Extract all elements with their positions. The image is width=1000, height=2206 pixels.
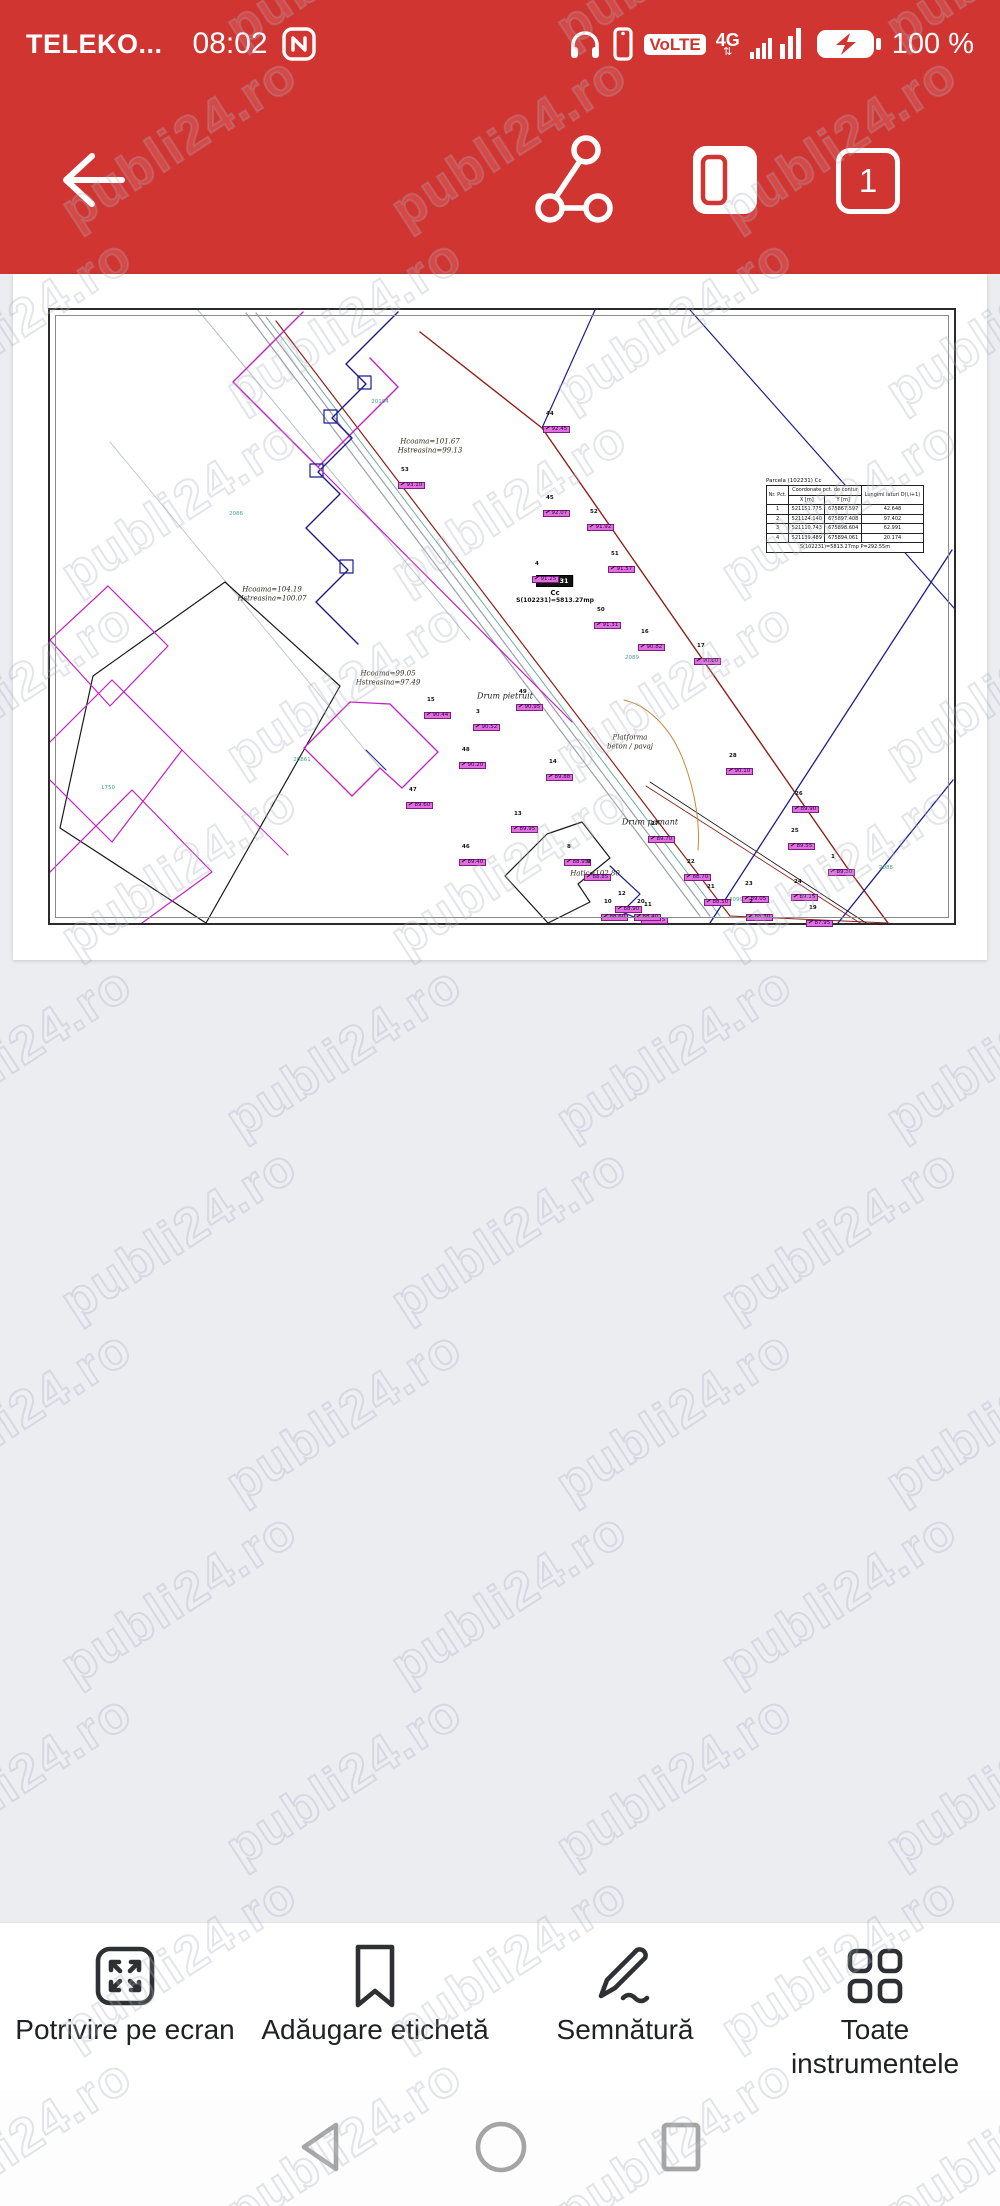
bottom-toolbar: Potrivire pe ecran Adăugare etichetă Sem… <box>0 1922 1000 2091</box>
watermark-text: publi24.ro <box>50 1500 308 1697</box>
share-route-button[interactable] <box>528 132 620 231</box>
survey-point-marker: 5291.92 <box>587 510 614 532</box>
watermark-text: publi24.ro <box>545 954 803 1151</box>
survey-point-marker: 4789.60 <box>406 788 433 810</box>
watermark-text: publi24.ro <box>875 1682 1000 1879</box>
survey-point-marker: 2689.90 <box>792 792 819 814</box>
reading-mode-button[interactable] <box>692 145 758 218</box>
status-clock: 08:02 <box>193 27 268 61</box>
signature-pen-icon <box>593 1939 657 2013</box>
pdf-page[interactable]: Drum pietruit Drum pamant Platforma beto… <box>13 274 987 960</box>
network-type-indicator: 4G ⇅ <box>716 31 740 58</box>
watermark-text: publi24.ro <box>875 954 1000 1151</box>
fit-screen-label: Potrivire pe ecran <box>15 2013 234 2047</box>
nav-home-circle-icon <box>474 2120 528 2177</box>
survey-point-marker: 5191.57 <box>608 552 635 574</box>
status-bar: TELEKO... 08:02 VoLTE 4G ⇅ 100 % <box>0 0 1000 88</box>
label-bookmark-icon <box>350 1939 400 2013</box>
reading-mode-icon <box>692 145 758 218</box>
survey-point-marker: 1389.95 <box>511 812 538 834</box>
survey-point-marker: 1590.44 <box>424 698 451 720</box>
watermark-text: publi24.ro <box>380 1136 638 1333</box>
survey-point-marker: 2789.70 <box>648 822 675 844</box>
survey-point-marker: 4592.07 <box>543 496 570 518</box>
area-id-label: 2088 <box>879 865 893 871</box>
page-number: 1 <box>859 162 877 200</box>
survey-point-marker: 4689.40 <box>459 845 486 867</box>
nav-home-button[interactable] <box>474 2120 528 2177</box>
survey-point-marker: 2589.55 <box>788 829 815 851</box>
carrier-label: TELEKO... <box>26 29 163 60</box>
watermark-text: publi24.ro <box>215 1318 473 1515</box>
survey-point-marker: 5393.10 <box>398 468 425 490</box>
watermark-text: publi24.ro <box>710 1500 968 1697</box>
android-nav-bar <box>0 2090 1000 2206</box>
watermark-text: publi24.ro <box>0 1682 143 1879</box>
signature-button[interactable]: Semnătură <box>500 1923 750 2091</box>
watermark-text: publi24.ro <box>50 1136 308 1333</box>
signal-bars-icon <box>750 28 806 60</box>
signature-label: Semnătură <box>557 2013 694 2047</box>
phone-vibrate-icon <box>612 27 634 61</box>
survey-point-marker: 4492.45 <box>543 412 570 434</box>
all-tools-grid-icon <box>846 1939 904 2013</box>
fit-screen-icon <box>94 1939 156 2013</box>
watermark-text: publi24.ro <box>215 954 473 1151</box>
battery-percent: 100 % <box>892 28 974 61</box>
area-id-label: 20861 <box>293 757 311 763</box>
survey-point-marker: 2088.40 <box>634 900 661 922</box>
survey-point-marker: 2489.15 <box>791 880 818 902</box>
area-id-label: 2089 <box>625 655 639 661</box>
survey-point-marker: 4990.95 <box>516 690 543 712</box>
watermark-text: publi24.ro <box>380 1500 638 1697</box>
platform-label: Platforma beton / pavaj <box>607 733 653 751</box>
back-button[interactable] <box>52 142 128 221</box>
area-id-label: 20164 <box>371 399 389 405</box>
area-id-label: 3099 <box>729 897 743 903</box>
parcel-type: Cc <box>516 589 594 597</box>
nfc-icon <box>282 27 316 61</box>
survey-point-marker: 5091.31 <box>594 608 621 630</box>
app-toolbar: 1 <box>0 88 1000 274</box>
watermark-text: publi24.ro <box>0 954 143 1151</box>
battery-charging-icon <box>816 27 882 61</box>
survey-point-marker: 2288.70 <box>684 860 711 882</box>
all-tools-button[interactable]: Toate instrumentele <box>750 1923 1000 2091</box>
add-label-button[interactable]: Adăugare etichetă <box>250 1923 500 2091</box>
building-height-label: Hcoama=104.19Hstreasina=100.07 <box>237 585 306 603</box>
survey-point-marker: 988.85 <box>584 860 611 882</box>
building-height-label: Hcoama=99.05Hstreasina=97.49 <box>356 669 421 687</box>
parcel-area: S(102231)=5813.27mp <box>516 597 594 604</box>
headphones-icon <box>568 28 602 60</box>
survey-point-marker: 1987.95 <box>806 906 833 928</box>
area-id-label: 2086 <box>229 511 243 517</box>
coordinates-table: Parcela (102231) CcNr. Pct.Coordonate pc… <box>766 478 924 553</box>
share-route-icon <box>528 132 620 231</box>
survey-point-marker: 1690.82 <box>638 630 665 652</box>
survey-point-marker: 491.25 <box>532 562 559 584</box>
page-indicator[interactable]: 1 <box>836 148 900 214</box>
survey-point-marker: 189.30 <box>828 855 855 877</box>
fit-screen-button[interactable]: Potrivire pe ecran <box>0 1923 250 2091</box>
area-id-label: 1750 <box>101 785 115 791</box>
watermark-text: publi24.ro <box>875 1318 1000 1515</box>
watermark-text: publi24.ro <box>545 1682 803 1879</box>
survey-point-marker: 1088.60 <box>601 900 628 922</box>
cadastral-plan: Drum pietruit Drum pamant Platforma beto… <box>48 308 956 925</box>
nav-back-button[interactable] <box>298 2121 342 2176</box>
watermark-text: publi24.ro <box>545 1318 803 1515</box>
watermark-text: publi24.ro <box>215 1682 473 1879</box>
back-arrow-icon <box>52 142 128 221</box>
all-tools-label: Toate instrumentele <box>758 2013 993 2080</box>
volte-badge: VoLTE <box>644 34 705 55</box>
cadastral-plan-drawing <box>50 310 954 923</box>
survey-point-marker: 2890.10 <box>726 754 753 776</box>
survey-point-marker: 2188.50 <box>704 885 731 907</box>
nav-back-triangle-icon <box>298 2121 342 2176</box>
survey-point-marker: 390.52 <box>473 710 500 732</box>
survey-point-marker: 1790.60 <box>694 644 721 666</box>
survey-point-marker: 4890.20 <box>459 748 486 770</box>
survey-point-marker: 288.30 <box>746 900 773 922</box>
watermark-text: publi24.ro <box>710 1136 968 1333</box>
building-height-label: Hcoama=101.67Hstreasina=99.13 <box>398 437 463 455</box>
survey-point-marker: 1489.88 <box>546 760 573 782</box>
nav-recents-button[interactable] <box>660 2121 702 2176</box>
nav-recents-square-icon <box>660 2121 702 2176</box>
watermark-text: publi24.ro <box>0 1318 143 1515</box>
add-label-label: Adăugare etichetă <box>261 2013 488 2047</box>
